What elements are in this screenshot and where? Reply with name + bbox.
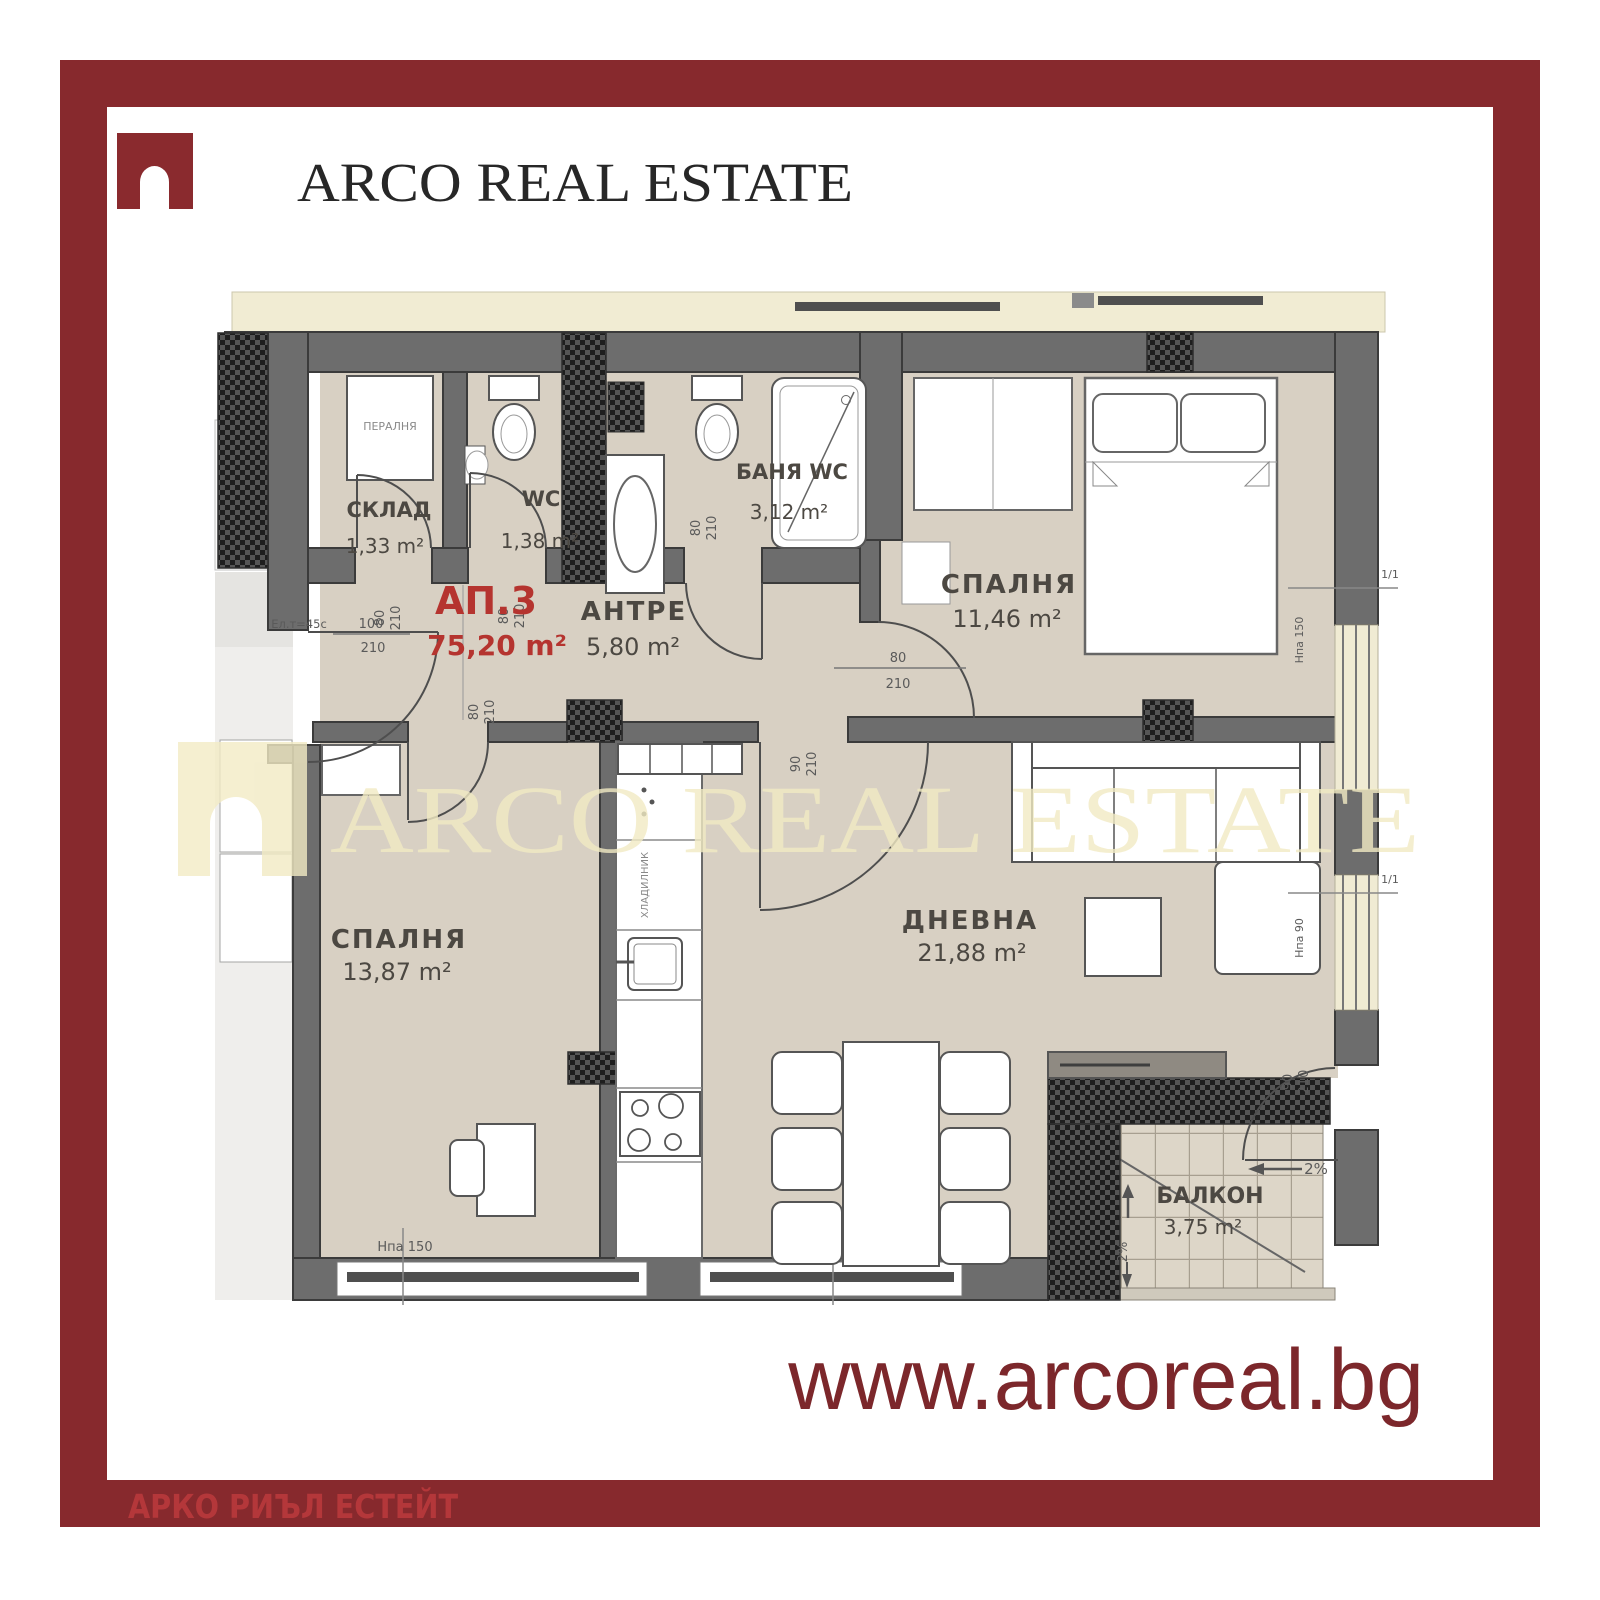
brand-arch-logo-icon — [117, 133, 193, 209]
wall-right-balcony — [1335, 1130, 1378, 1245]
vent-shaft — [608, 382, 644, 432]
balcony-dim-w: 90 — [1281, 1074, 1296, 1091]
column-living-top — [1143, 700, 1193, 742]
label-bedroom1: СПАЛНЯ — [941, 570, 1077, 600]
label-living: ДНЕВНА — [902, 906, 1038, 936]
column-top-wall — [1147, 332, 1193, 372]
balcony-parapet-v — [1048, 1124, 1120, 1300]
wall-left-upper — [268, 332, 308, 630]
pillow-1 — [1093, 394, 1177, 452]
wall-service-4 — [762, 548, 862, 583]
window-marker-top-1 — [795, 302, 1000, 311]
wall-mid-left-1 — [313, 722, 408, 742]
window2-mark: 1/1 — [1381, 873, 1399, 886]
area-living: 21,88 m² — [917, 939, 1026, 967]
desk-chair — [450, 1140, 484, 1196]
area-bedroom1: 11,46 m² — [952, 605, 1061, 633]
window-marker-top-2 — [1098, 296, 1263, 305]
coffee-table — [1085, 898, 1161, 976]
chair-4 — [940, 1052, 1010, 1114]
electrical-panel-label: Ел.т=45с — [271, 617, 327, 631]
window2-dim: Hпа 90 — [1293, 918, 1306, 958]
toilet-2-bowl — [696, 404, 738, 460]
window-marker-block — [1072, 293, 1094, 308]
window1-mark: 1/1 — [1381, 568, 1399, 581]
apartment-number: АП.3 — [435, 579, 537, 623]
brand-name: ARCO REAL ESTATE — [297, 152, 853, 213]
website-url: www.arcoreal.bg — [787, 1332, 1424, 1428]
bedroom2-dim-h: 210 — [483, 700, 498, 725]
toilet-1-bowl — [493, 404, 535, 460]
area-bedroom2: 13,87 m² — [342, 958, 451, 986]
label-storage: СКЛАД — [347, 498, 432, 522]
balcony-parapet-bottom — [1095, 1288, 1335, 1300]
wall-bath-bedroom-stub — [860, 540, 880, 622]
bedroom2-dim-w: 80 — [467, 704, 482, 721]
sofa-back — [1012, 742, 1320, 768]
chair-2 — [772, 1128, 842, 1190]
wall-mid-kitchen — [622, 722, 758, 742]
toilet-1-tank — [489, 376, 539, 400]
balcony-dim-h: 210 — [1297, 1070, 1312, 1095]
wall-storage-wc — [443, 372, 467, 548]
bedroom1-dim-w: 80 — [890, 651, 907, 666]
watermark-text: ARCO REAL ESTATE — [330, 766, 1420, 873]
desk — [477, 1124, 535, 1216]
label-bathroom: БАНЯ WC — [736, 460, 848, 484]
label-bedroom2: СПАЛНЯ — [331, 925, 467, 955]
kitchen-sink — [628, 938, 682, 990]
wall-living-top — [848, 717, 1338, 742]
bedroom1-dim-h: 210 — [886, 677, 911, 692]
dining-table — [843, 1042, 939, 1266]
label-wc: WC — [522, 487, 561, 511]
area-wc: 1,38 m² — [501, 529, 579, 553]
storage-dim-w: 80 — [373, 610, 388, 627]
footer-company-name: АРКО РИЪЛ ЕСТЕЙТ — [128, 1486, 458, 1526]
chair-5 — [940, 1128, 1010, 1190]
bath-dim-w: 80 — [689, 520, 704, 537]
label-hallway: АНТРЕ — [581, 597, 687, 627]
storage-dim-h: 210 — [389, 606, 404, 631]
apartment-area: 75,20 m² — [427, 629, 567, 662]
wall-service-2 — [432, 548, 468, 583]
column-left-strip — [218, 333, 268, 568]
washing-machine-label: ПЕРАЛНЯ — [363, 420, 417, 433]
real-estate-listing-image: ПЕРАЛНЯ ХЛАДИЛ — [0, 0, 1600, 1600]
label-balcony: БАЛКОН — [1156, 1184, 1263, 1209]
bath-dim-h: 210 — [705, 516, 720, 541]
window1-dim: Hпа 150 — [1293, 617, 1306, 664]
wall-right-upper — [1335, 332, 1378, 625]
chair-3 — [772, 1202, 842, 1264]
basin-bowl — [614, 476, 656, 572]
column-kitchen-low — [568, 1052, 616, 1084]
wall-mid-left-2 — [488, 722, 567, 742]
window-bottom-1-sash — [347, 1272, 639, 1282]
pillow-2 — [1181, 394, 1265, 452]
slope-label-1: 2% — [1304, 1160, 1328, 1178]
area-storage: 1,33 m² — [346, 534, 424, 558]
bottom-window-dim: Hпа 150 — [377, 1240, 432, 1255]
area-balcony: 3,75 m² — [1164, 1215, 1242, 1239]
wall-right-lower — [1335, 1010, 1378, 1065]
area-bathroom: 3,12 m² — [750, 500, 828, 524]
entrance-dim-h: 210 — [361, 641, 386, 656]
area-hallway: 5,80 m² — [586, 633, 680, 661]
toilet-2-tank — [692, 376, 742, 400]
column-kitchen-top — [567, 700, 622, 742]
chair-1 — [772, 1052, 842, 1114]
slope-label-2: 2% — [1116, 1242, 1131, 1263]
floor-plan-svg: ПЕРАЛНЯ ХЛАДИЛ — [0, 0, 1600, 1600]
window-bottom-2-sash — [710, 1272, 954, 1282]
chair-6 — [940, 1202, 1010, 1264]
